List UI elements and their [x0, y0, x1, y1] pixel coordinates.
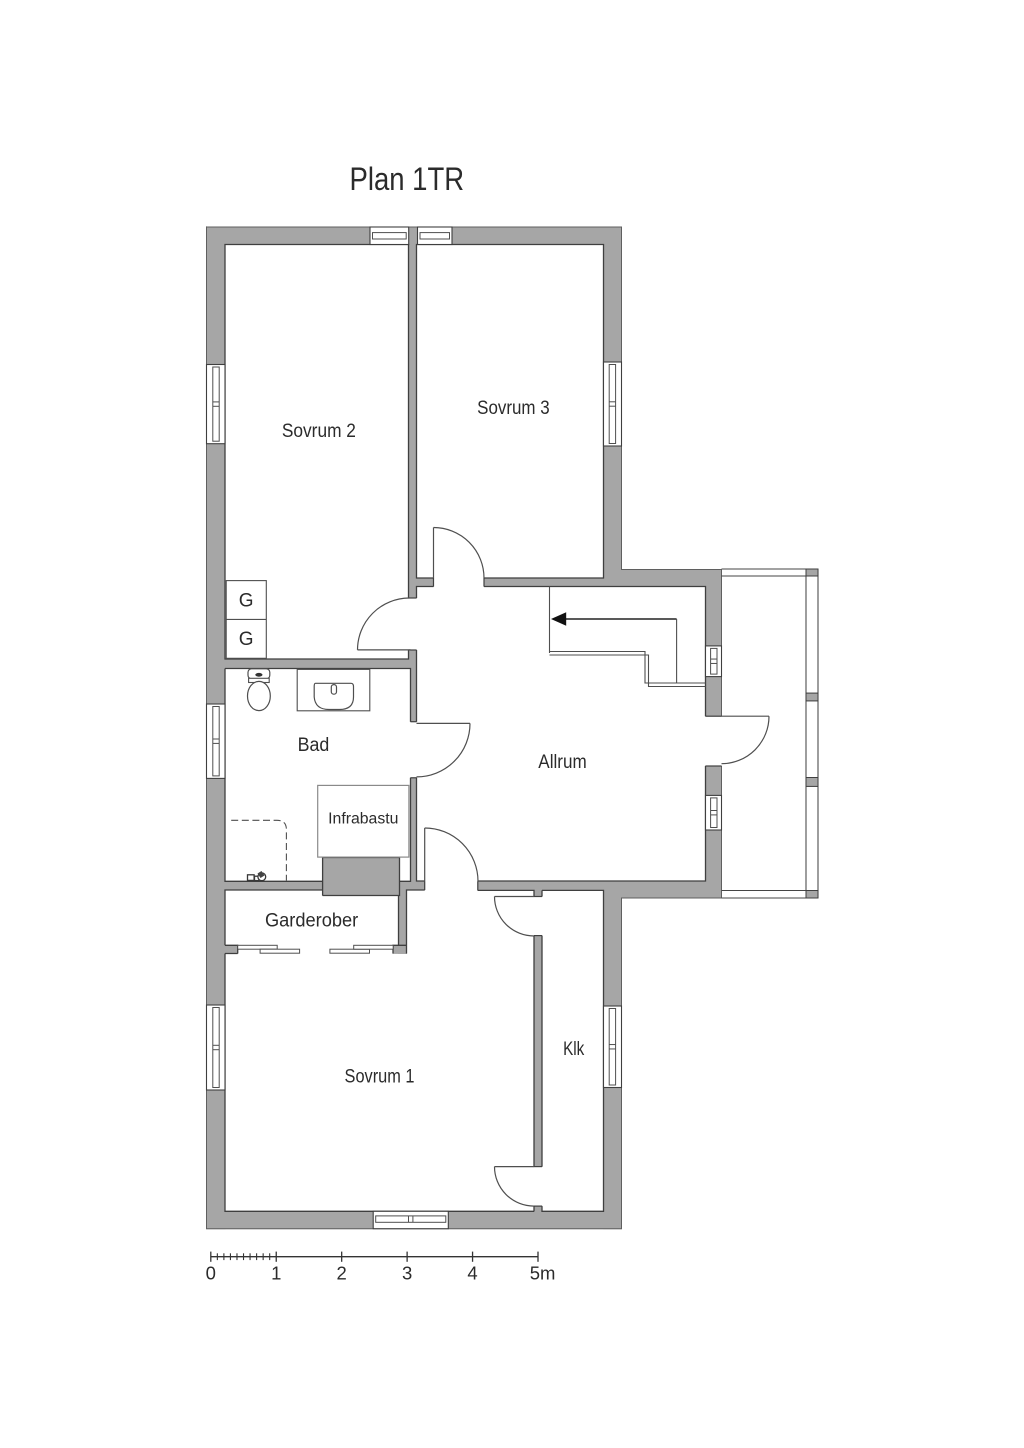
svg-text:Infrabastu: Infrabastu: [328, 811, 398, 828]
svg-text:Allrum: Allrum: [538, 752, 586, 773]
svg-text:Sovrum 1: Sovrum 1: [345, 1067, 415, 1088]
svg-text:2: 2: [337, 1262, 347, 1283]
svg-text:Garderober: Garderober: [265, 910, 359, 931]
svg-text:4: 4: [467, 1262, 477, 1283]
svg-text:5m: 5m: [530, 1262, 556, 1283]
svg-text:Bad: Bad: [298, 735, 330, 756]
svg-text:Klk: Klk: [563, 1039, 585, 1060]
svg-text:Plan 1TR: Plan 1TR: [350, 161, 465, 197]
svg-text:3: 3: [402, 1262, 412, 1283]
svg-text:Sovrum 2: Sovrum 2: [282, 421, 356, 442]
svg-text:G: G: [239, 629, 254, 650]
svg-text:0: 0: [206, 1262, 216, 1283]
svg-text:1: 1: [271, 1262, 281, 1283]
svg-text:Sovrum 3: Sovrum 3: [477, 398, 550, 419]
svg-text:G: G: [239, 591, 254, 612]
